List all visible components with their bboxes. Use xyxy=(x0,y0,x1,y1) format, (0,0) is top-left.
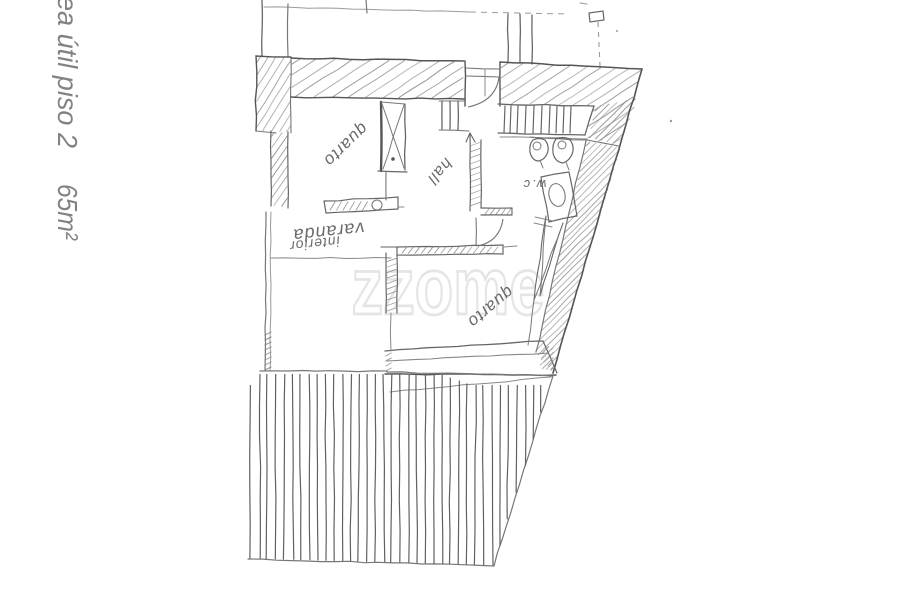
svg-text:65m²: 65m² xyxy=(52,184,83,241)
svg-text:hall: hall xyxy=(423,154,455,187)
svg-text:ea útil piso 2: ea útil piso 2 xyxy=(52,0,83,148)
svg-text:quarto: quarto xyxy=(320,119,372,170)
